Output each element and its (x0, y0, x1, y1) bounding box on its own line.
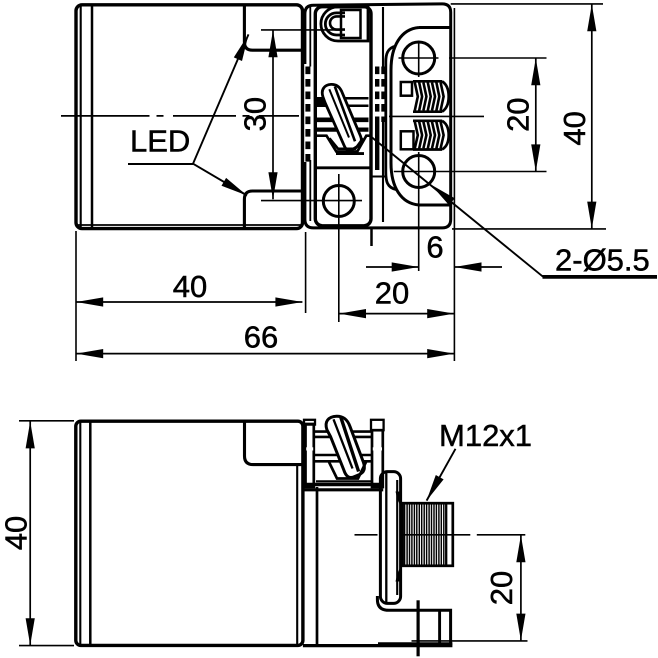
svg-text:20: 20 (484, 571, 519, 605)
svg-text:40: 40 (173, 269, 207, 304)
svg-text:6: 6 (426, 230, 443, 265)
svg-text:LED: LED (130, 123, 190, 158)
svg-text:20: 20 (375, 276, 409, 311)
svg-text:40: 40 (557, 111, 592, 145)
svg-text:M12x1: M12x1 (439, 418, 532, 453)
svg-text:30: 30 (237, 97, 272, 131)
svg-text:40: 40 (0, 516, 34, 550)
svg-text:20: 20 (501, 97, 536, 131)
svg-text:66: 66 (244, 320, 278, 355)
svg-text:2-Ø5.5: 2-Ø5.5 (555, 243, 650, 278)
